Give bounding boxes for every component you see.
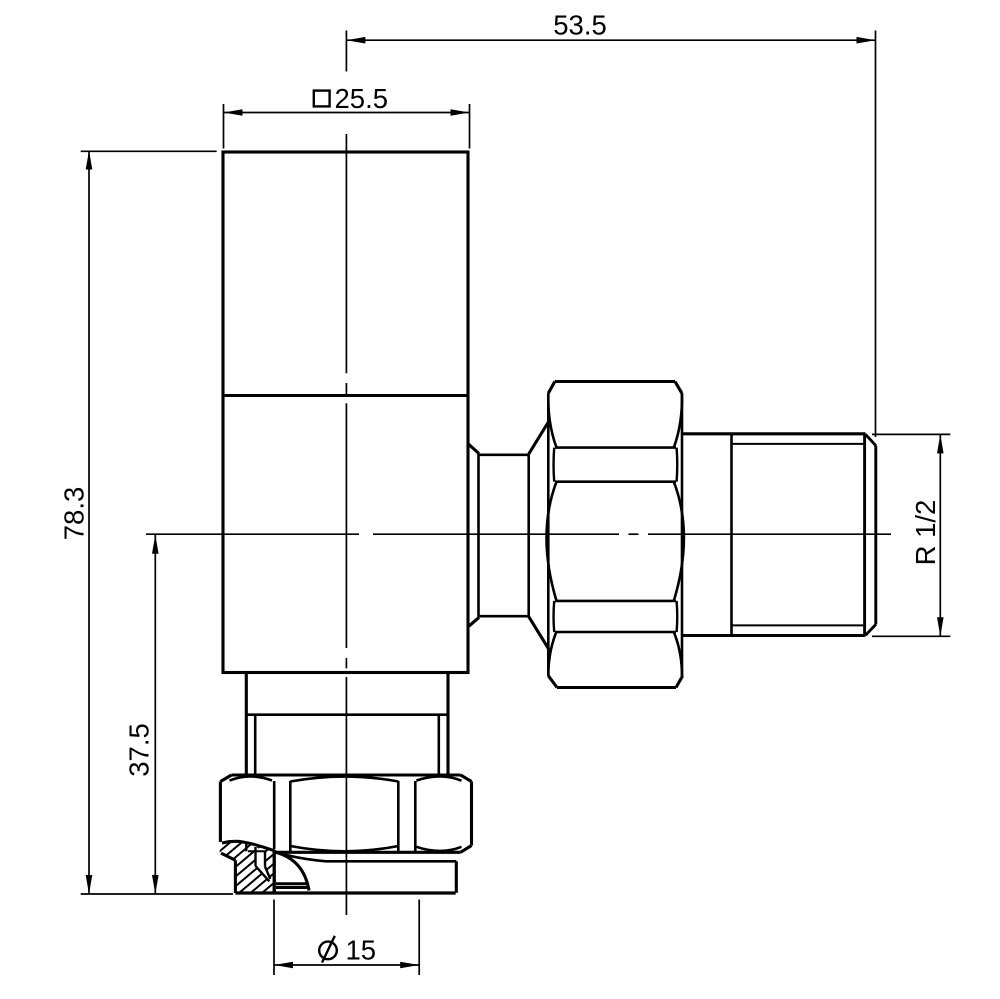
svg-text:37.5: 37.5 (124, 723, 155, 777)
svg-text:78.3: 78.3 (59, 487, 90, 541)
svg-text:R 1/2: R 1/2 (910, 500, 941, 566)
svg-text:15: 15 (346, 934, 377, 965)
svg-text:25.5: 25.5 (335, 83, 389, 114)
svg-text:53.5: 53.5 (553, 10, 607, 41)
